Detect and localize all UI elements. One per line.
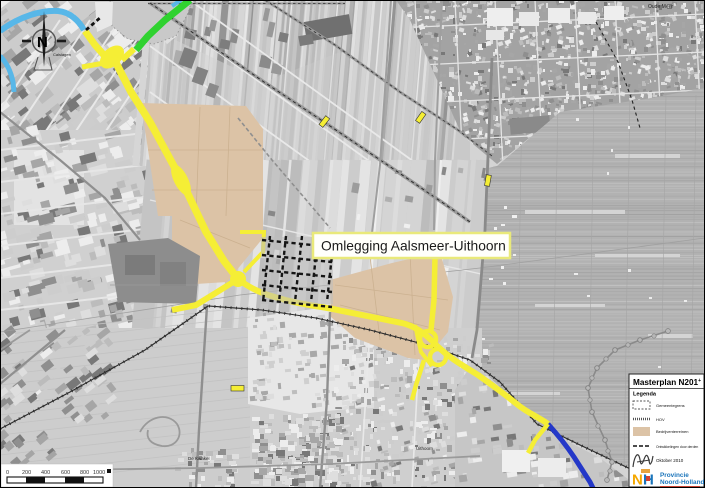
svg-text:N: N (632, 472, 643, 488)
svg-text:Ontwikkelingen door derden: Ontwikkelingen door derden (656, 445, 698, 449)
svg-text:Gemeentegrens: Gemeentegrens (656, 403, 685, 408)
svg-text:200: 200 (22, 470, 31, 476)
svg-text:Uithoorn: Uithoorn (416, 446, 434, 451)
svg-text:1000: 1000 (93, 470, 105, 476)
svg-text:Provincie: Provincie (660, 472, 689, 479)
svg-text:N: N (37, 34, 48, 51)
svg-text:Bedrijventerreinen: Bedrijventerreinen (656, 429, 688, 434)
svg-text:0: 0 (6, 470, 9, 476)
svg-text:Oude Meer: Oude Meer (648, 4, 673, 10)
svg-text:400: 400 (41, 470, 50, 476)
svg-text:Noord-Holland: Noord-Holland (660, 479, 704, 486)
svg-text:Omlegging Aalsmeer-Uithoorn: Omlegging Aalsmeer-Uithoorn (321, 239, 506, 254)
svg-text:Legenda: Legenda (633, 392, 657, 398)
svg-text:Masterplan N201+: Masterplan N201+ (633, 378, 701, 387)
svg-text:600: 600 (61, 470, 70, 476)
svg-text:Calslagen: Calslagen (53, 52, 71, 57)
svg-text:800: 800 (80, 470, 89, 476)
svg-text:Oktober 2010: Oktober 2010 (656, 458, 684, 463)
svg-text:De Kwakel: De Kwakel (188, 456, 210, 461)
svg-text:HOV: HOV (656, 417, 665, 422)
